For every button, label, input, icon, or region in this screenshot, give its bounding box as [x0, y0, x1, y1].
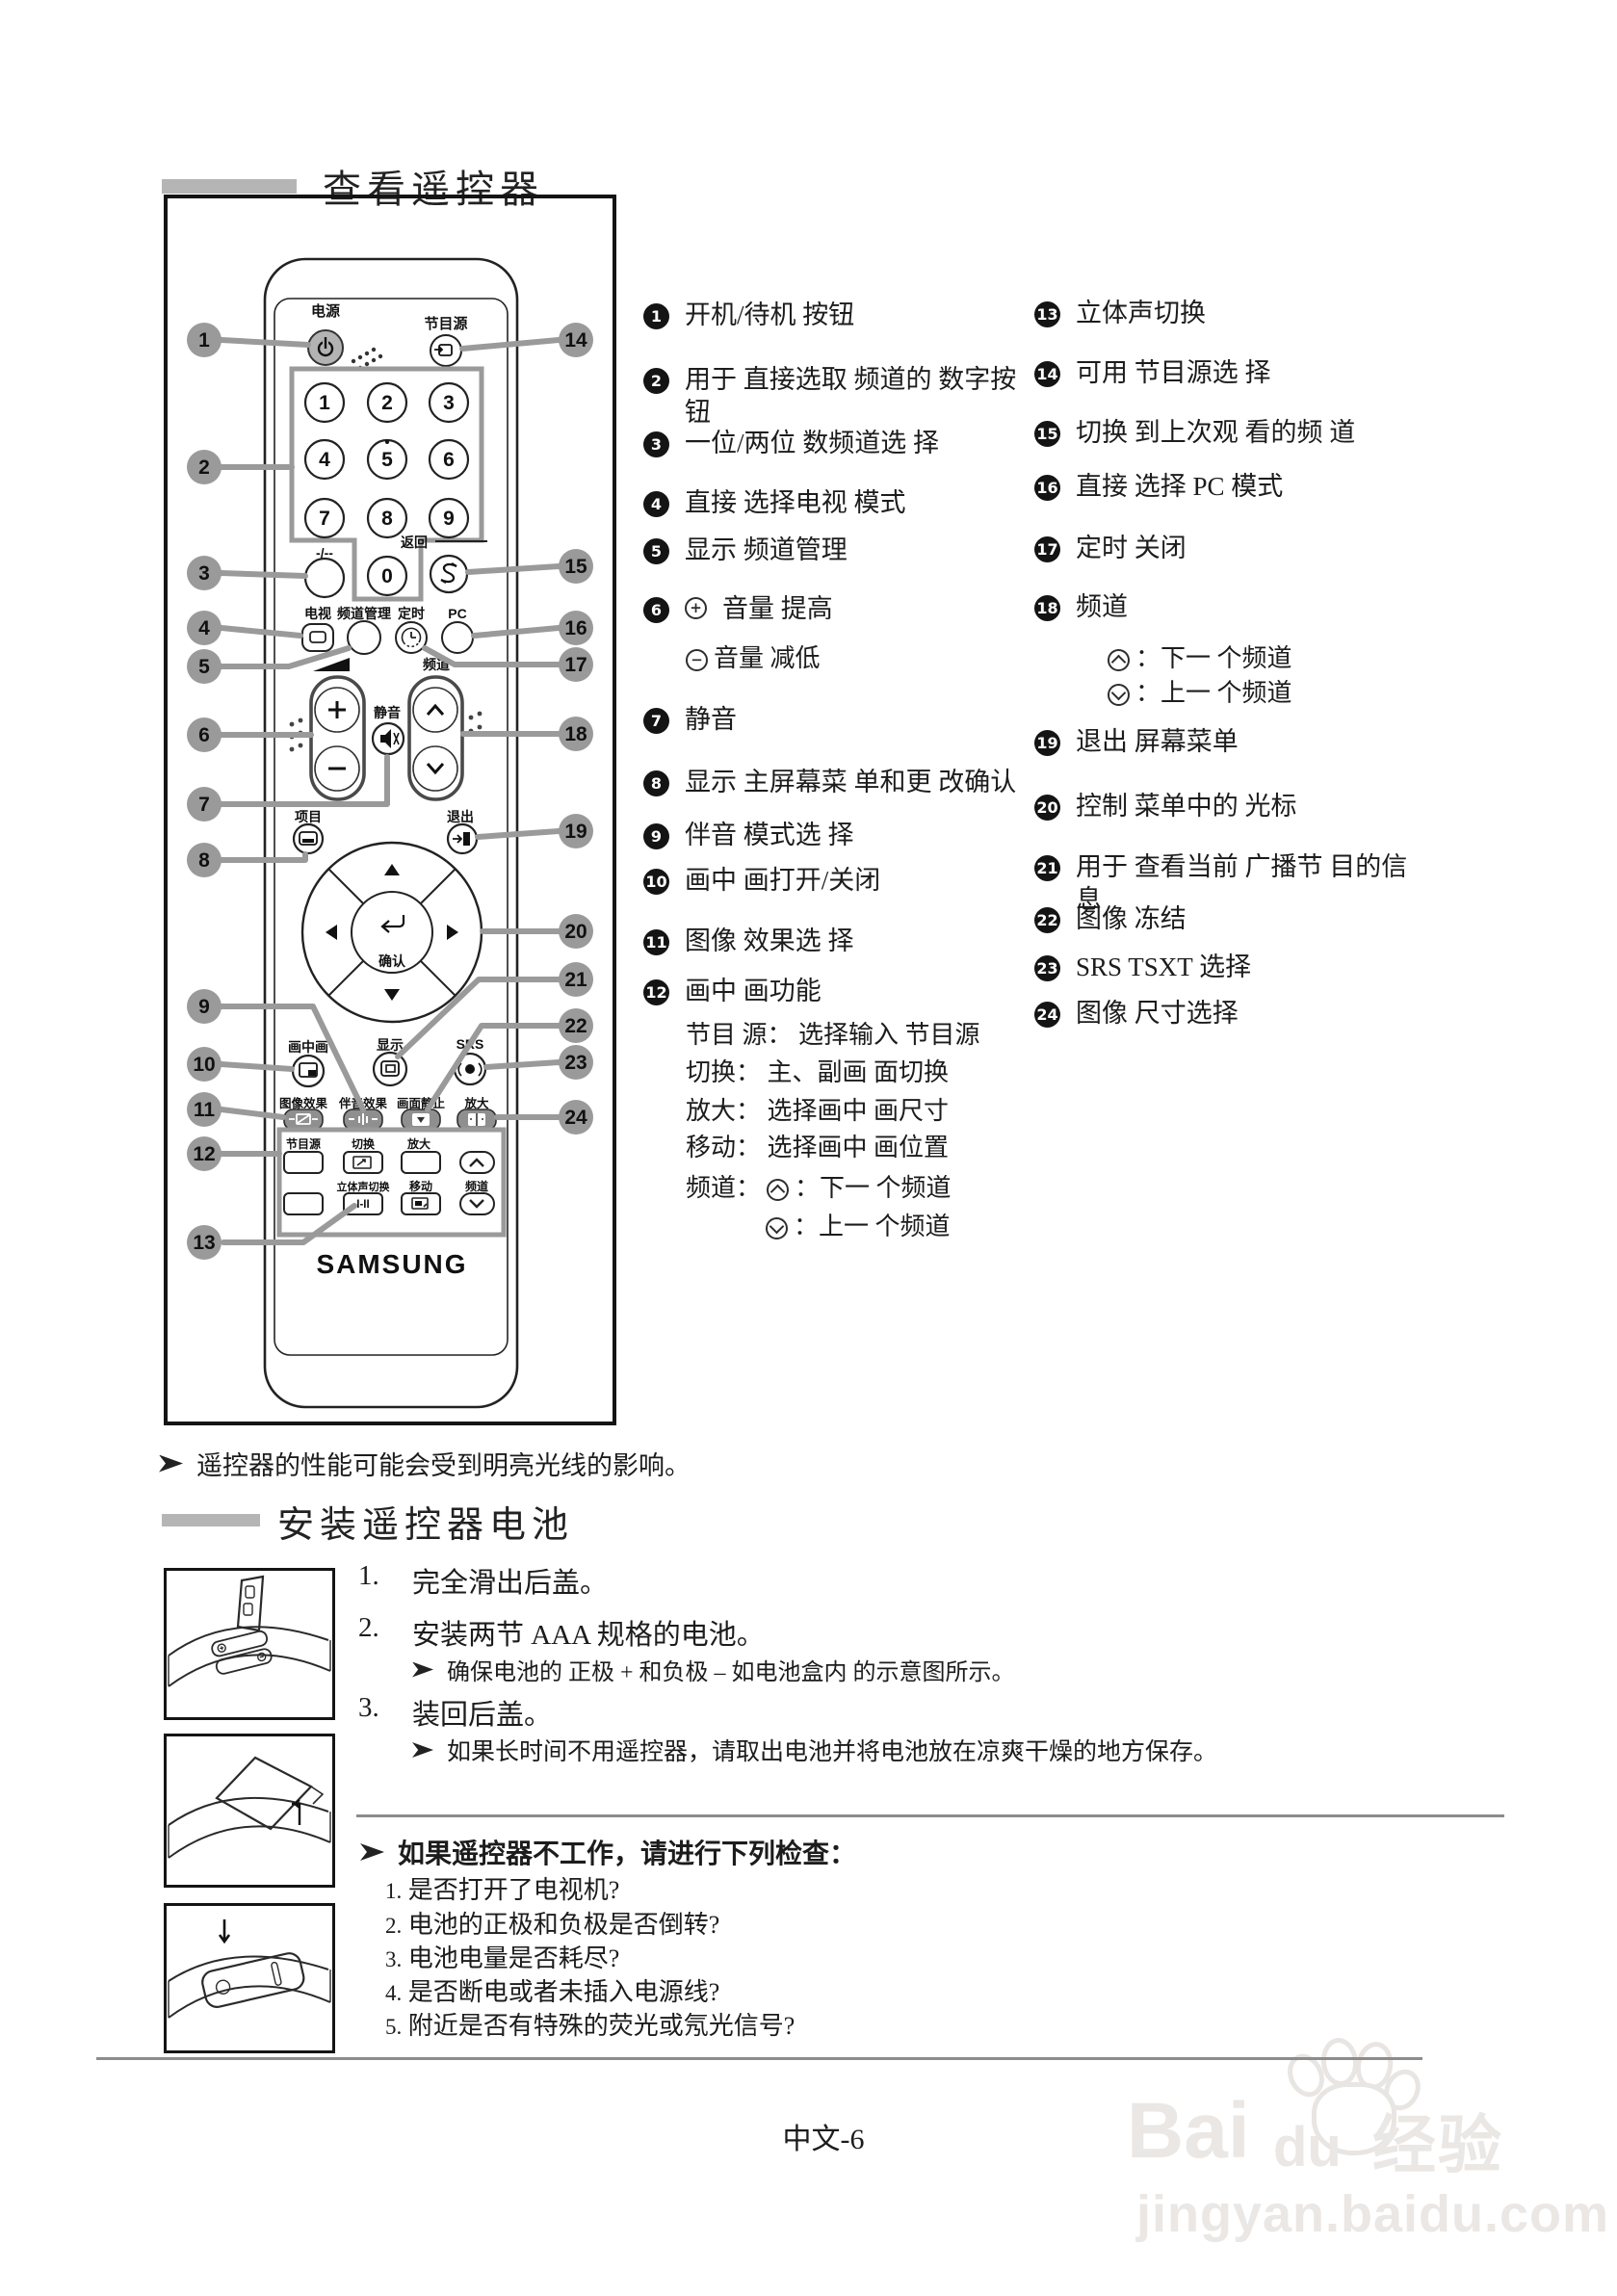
group-size-button[interactable] — [402, 1152, 440, 1173]
zoom-label: 放大 — [463, 1096, 489, 1110]
battery-sketch-slide — [167, 1906, 332, 2050]
legend-num: 20 — [1034, 795, 1060, 821]
callout-4: 4 — [187, 611, 222, 645]
digit-4-label: 4 — [319, 449, 330, 471]
note-arrow-icon — [412, 1742, 433, 1758]
legend-item-2: 2用于 直接选取 频道的 数字按 钮 — [643, 364, 1048, 430]
step-3-note-text: 如果长时间不用遥控器，请取出电池并将电池放在凉爽干燥的地方保存。 — [447, 1733, 1217, 1767]
note-arrow-icon — [159, 1455, 183, 1473]
digit-7-label: 7 — [319, 508, 330, 530]
svg-text:24: 24 — [564, 1107, 587, 1129]
group-channel2-label: 频道 — [465, 1179, 488, 1193]
legend-item-1: 1开机/待机 按钮 — [643, 300, 854, 332]
callout-1: 1 — [187, 323, 222, 357]
step-2-note-text: 确保电池的 正极 + 和负极 – 如电池盒内 的示意图所示。 — [447, 1653, 1015, 1686]
svg-text:11: 11 — [194, 1099, 216, 1121]
exit-label: 退出 — [447, 809, 474, 824]
legend-text: 直接 选择 PC 模式 — [1076, 471, 1283, 504]
svg-text:8: 8 — [198, 849, 210, 872]
samsung-logo: SAMSUNG — [316, 1249, 467, 1279]
return-icon — [441, 564, 456, 582]
callout-11: 11 — [187, 1092, 222, 1127]
callout-14: 14 — [559, 323, 593, 357]
pip-icon — [300, 1063, 317, 1077]
group-channel-up-icon — [470, 1160, 483, 1166]
group-move-button[interactable] — [402, 1193, 440, 1214]
callout-6: 6 — [187, 717, 222, 752]
svg-text:15: 15 — [564, 556, 587, 578]
group-move-label: 移动 — [409, 1179, 432, 1193]
legend-num: 17 — [1034, 536, 1060, 562]
dpad[interactable] — [302, 843, 482, 1022]
divider-line — [356, 1814, 1504, 1817]
pip-button[interactable] — [293, 1056, 324, 1086]
legend-item-5: 5显示 频道管理 — [643, 535, 848, 567]
check-item-1: 1. 是否打开了电视机? — [385, 1870, 619, 1906]
legend-item-18-down: ：上一 个频道 — [1108, 678, 1292, 708]
legend-num: 8 — [643, 770, 669, 796]
callout-18: 18 — [559, 717, 593, 751]
check-item-3: 3. 电池电量是否耗尽? — [385, 1939, 619, 1974]
legend-item-6b: −音量 减低 — [686, 643, 821, 673]
source-button[interactable] — [430, 335, 461, 366]
section1-bar — [162, 179, 297, 194]
battery-illustration-2 — [164, 1734, 335, 1888]
callout-12: 12 — [187, 1136, 222, 1171]
pc-label: PC — [448, 606, 466, 621]
legend-num: 7 — [643, 708, 669, 734]
callout-8: 8 — [187, 843, 222, 877]
pip-label: 画中画 — [288, 1039, 328, 1055]
sound-effect-button[interactable] — [344, 1109, 382, 1130]
menu-icon — [300, 832, 317, 845]
channel-manager-label: 频道管理 — [337, 606, 391, 621]
legend-item-12-move: 移动： 选择画中 画位置 — [686, 1133, 949, 1162]
legend-item-4: 4直接 选择电视 模式 — [643, 487, 906, 520]
channel-down-icon — [428, 764, 443, 772]
step-2-number: 2. — [358, 1612, 379, 1644]
watermark-du: du — [1273, 2115, 1342, 2179]
legend-num: 23 — [1034, 955, 1060, 981]
legend-text: 音量 提高 — [722, 593, 833, 626]
legend-item-18: 18频道 — [1034, 591, 1128, 624]
legend-item-20: 20控制 菜单中的 光标 — [1034, 791, 1297, 823]
legend-text: 显示 主屏幕菜 单和更 改确认 — [685, 767, 1016, 799]
svg-text:22: 22 — [564, 1015, 587, 1037]
channel-up-icon — [767, 1179, 789, 1201]
display-icon — [381, 1061, 399, 1076]
tv-label: 电视 — [304, 606, 331, 621]
legend-text: 图像 效果选 择 — [685, 926, 854, 958]
svg-text:18: 18 — [564, 723, 587, 745]
mute-label: 静音 — [374, 705, 401, 720]
legend-item-9: 9伴音 模式选 择 — [643, 820, 854, 852]
digit-buttons[interactable]: 1 2 3 4 5 6 7 8 9 0 — [305, 383, 468, 595]
legend-text: 显示 频道管理 — [685, 535, 848, 567]
svg-text:17: 17 — [564, 654, 587, 676]
step-1-text: 完全滑出后盖。 — [412, 1560, 608, 1601]
legend-num: 22 — [1034, 907, 1060, 933]
legend-item-23: 23SRS TSXT 选择 — [1034, 952, 1251, 984]
volume-minus-icon: − — [686, 649, 708, 671]
legend-text: 控制 菜单中的 光标 — [1076, 791, 1297, 823]
svg-text:23: 23 — [564, 1052, 587, 1074]
legend-num: 13 — [1034, 301, 1060, 327]
channel-up-icon — [1108, 649, 1130, 671]
watermark-url: jingyan.baidu.com — [1136, 2184, 1609, 2244]
channel-down-icon — [1108, 684, 1130, 706]
legend-num: 1 — [643, 303, 669, 329]
section2-title: 安装遥控器电池 — [277, 1495, 574, 1548]
legend-item-12-channel-down: ：上一 个频道 — [766, 1212, 951, 1241]
digit-6-label: 6 — [443, 449, 455, 471]
page-number: 中文-6 — [727, 2115, 920, 2157]
legend-text: 画中 画打开/关闭 — [685, 865, 880, 898]
svg-text:14: 14 — [564, 329, 587, 352]
group-size-label: 放大 — [406, 1136, 430, 1151]
svg-text:4: 4 — [198, 617, 210, 639]
callout-9: 9 — [187, 989, 222, 1024]
legend-num: 21 — [1034, 855, 1060, 881]
legend-item-12: 12画中 画功能 — [643, 976, 822, 1008]
digit-5-dot — [385, 440, 389, 444]
legend-item-14: 14可用 节目源选 择 — [1034, 357, 1271, 390]
stereo-ii-label: I-II — [356, 1199, 369, 1211]
legend-item-15: 15切换 到上次观 看的频 道 — [1034, 417, 1355, 450]
legend-text: 一位/两位 数频道选 择 — [685, 428, 939, 460]
legend-item-7: 7静音 — [643, 704, 737, 737]
callout-19: 19 — [559, 814, 593, 848]
legend-item-12-channel-up: 频道：：下一 个频道 — [686, 1173, 952, 1203]
legend-item-6: 6+音量 提高 — [643, 593, 833, 626]
callout-13: 13 — [187, 1225, 222, 1260]
mute-button[interactable] — [373, 723, 404, 754]
svg-text:21: 21 — [564, 969, 587, 991]
legend-num: 14 — [1034, 361, 1060, 387]
check-item-4: 4. 是否断电或者未插入电源线? — [385, 1972, 719, 2008]
legend-num: 6 — [643, 597, 669, 623]
legend-text: 伴音 模式选 择 — [685, 820, 854, 852]
dash-button[interactable] — [305, 559, 344, 597]
legend-text: 静音 — [685, 704, 737, 737]
pic-effect-label: 图像效果 — [279, 1096, 328, 1110]
section2-bar — [162, 1514, 260, 1526]
pic-effect-button[interactable] — [284, 1109, 323, 1130]
step-2-text: 安装两节 AAA 规格的电池。 — [412, 1612, 765, 1653]
light-note: 遥控器的性能可能会受到明亮光线的影响。 — [159, 1445, 691, 1482]
display-label: 显示 — [377, 1037, 404, 1053]
remote-diagram: 电源 节目源 — [164, 195, 616, 1425]
digit-9-label: 9 — [443, 508, 455, 530]
callout-22: 22 — [559, 1008, 593, 1043]
power-label: 电源 — [311, 302, 340, 320]
source-icon — [434, 345, 452, 355]
callout-3: 3 — [187, 556, 222, 590]
battery-illustration-3 — [164, 1903, 335, 2053]
group-source-label: 节目源 — [286, 1136, 321, 1151]
channel-manager-button[interactable] — [348, 621, 380, 654]
enter-icon — [382, 915, 404, 932]
group-channel-up-button[interactable] — [460, 1152, 494, 1173]
check-title-row: 如果遥控器不工作，请进行下列检查： — [360, 1833, 856, 1871]
svg-text:12: 12 — [193, 1143, 215, 1165]
legend-item-24: 24图像 尺寸选择 — [1034, 998, 1239, 1031]
move-icon — [412, 1198, 428, 1209]
tv-icon — [310, 632, 326, 642]
digit-0-label: 0 — [381, 565, 393, 587]
callout-23: 23 — [559, 1045, 593, 1080]
timer-label: 定时 — [398, 606, 425, 621]
legend-text: 画中 画功能 — [685, 976, 822, 1008]
group-source-button[interactable] — [284, 1152, 323, 1173]
note-arrow-icon — [360, 1843, 384, 1861]
group-swap-button[interactable] — [344, 1152, 382, 1173]
group-swap-label: 切换 — [352, 1136, 376, 1151]
effect-buttons — [284, 1109, 496, 1130]
dpad-up-icon — [384, 864, 400, 875]
step-3-note: 如果长时间不用遥控器，请取出电池并将电池放在凉爽干燥的地方保存。 — [412, 1733, 1217, 1767]
callout-17: 17 — [559, 647, 593, 682]
legend-num: 9 — [643, 823, 669, 849]
legend-num: 18 — [1034, 595, 1060, 621]
legend-num: 5 — [643, 538, 669, 564]
legend-text: 音量 减低 — [714, 643, 821, 673]
battery-sketch-cover — [167, 1736, 332, 1885]
legend-item-22: 22图像 冻结 — [1034, 903, 1187, 936]
display-button[interactable] — [374, 1053, 406, 1085]
callout-20: 20 — [559, 914, 593, 949]
return-button[interactable] — [430, 556, 467, 592]
watermark-bai: Bai — [1127, 2086, 1250, 2177]
digit-3-label: 3 — [443, 392, 455, 414]
legend-num: 11 — [643, 929, 669, 955]
legend-num: 12 — [643, 979, 669, 1005]
volume-plus-icon: + — [685, 597, 707, 619]
legend-text: 频道 — [1076, 591, 1128, 624]
channel-rocker[interactable] — [409, 677, 462, 799]
callout-2: 2 — [187, 450, 222, 484]
legend-item-16: 16直接 选择 PC 模式 — [1034, 471, 1283, 504]
note-arrow-icon — [412, 1662, 433, 1678]
source-label: 节目源 — [424, 315, 467, 332]
legend-item-11: 11图像 效果选 择 — [643, 926, 854, 958]
legend-text: SRS TSXT 选择 — [1076, 952, 1251, 984]
legend-text: 定时 关闭 — [1076, 533, 1187, 565]
group-blank-button[interactable] — [284, 1193, 323, 1214]
svg-text:10: 10 — [193, 1054, 215, 1076]
check-item-5: 5. 附近是否有特殊的荧光或氖光信号? — [385, 2006, 795, 2042]
step-1-number: 1. — [358, 1560, 379, 1592]
volume-rocker[interactable] — [311, 677, 364, 799]
clock-icon — [403, 628, 421, 646]
legend-text: 退出 屏幕菜单 — [1076, 726, 1239, 759]
svg-text:1: 1 — [198, 329, 210, 352]
tv-button[interactable] — [302, 624, 333, 651]
dpad-right-icon — [447, 925, 458, 940]
footer-line — [96, 2057, 1422, 2060]
srs-icon — [458, 1063, 482, 1076]
svg-text:3: 3 — [198, 562, 210, 585]
exit-button[interactable] — [448, 824, 477, 853]
legend-text: 图像 尺寸选择 — [1076, 998, 1239, 1031]
legend-item-12-source: 节目 源： 选择输入 节目源 — [686, 1020, 980, 1050]
dpad-down-icon — [384, 989, 400, 1001]
svg-text:6: 6 — [198, 724, 210, 746]
check-item-2: 2. 电池的正极和负极是否倒转? — [385, 1905, 719, 1941]
item-button[interactable] — [294, 824, 323, 853]
legend-item-13: 13立体声切换 — [1034, 298, 1206, 330]
legend-item-18-up: ：下一 个频道 — [1108, 643, 1292, 673]
volume-up-icon — [328, 701, 346, 718]
legend-num: 16 — [1034, 475, 1060, 501]
svg-text:7: 7 — [198, 794, 210, 816]
step-2-note: 确保电池的 正极 + 和负极 – 如电池盒内 的示意图所示。 — [412, 1653, 1015, 1686]
legend-text: 开机/待机 按钮 — [685, 300, 854, 332]
svg-text:13: 13 — [193, 1232, 215, 1254]
legend-item-3: 3一位/两位 数频道选 择 — [643, 428, 939, 460]
pc-button[interactable] — [442, 622, 473, 653]
legend-text: 用于 直接选取 频道的 数字按 钮 — [685, 364, 1048, 430]
legend-text: 直接 选择电视 模式 — [685, 487, 906, 520]
light-note-text: 遥控器的性能可能会受到明亮光线的影响。 — [196, 1445, 691, 1482]
callout-21: 21 — [559, 962, 593, 997]
legend-text: 可用 节目源选 择 — [1076, 357, 1271, 390]
manual-page: 查看遥控器 电源 节目源 — [0, 0, 1617, 2296]
battery-illustration-1 — [164, 1568, 335, 1720]
digit-8-label: 8 — [381, 508, 393, 530]
legend-text: 图像 冻结 — [1076, 903, 1187, 936]
legend-num: 3 — [643, 431, 669, 457]
channel-down-icon — [766, 1217, 788, 1239]
baidu-watermark: Bai du 经验 jingyan.baidu.com — [1127, 2048, 1560, 2279]
zoom-button[interactable] — [457, 1109, 496, 1130]
legend-item-8: 8显示 主屏幕菜 单和更 改确认 — [643, 767, 1016, 799]
svg-text:16: 16 — [564, 617, 587, 639]
mute-icon — [380, 729, 399, 748]
item-label: 项目 — [295, 809, 322, 824]
callout-16: 16 — [559, 611, 593, 645]
legend-num: 4 — [643, 491, 669, 517]
legend-item-19: 19退出 屏幕菜单 — [1034, 726, 1239, 759]
legend-item-12-swap: 切换： 主、副画 面切换 — [686, 1057, 949, 1087]
group-stereo-label: 立体声切换 — [337, 1180, 391, 1193]
group-channel-down-button[interactable] — [460, 1193, 494, 1214]
exit-icon — [453, 832, 470, 846]
swap-icon — [353, 1157, 371, 1168]
callout-24: 24 — [559, 1100, 593, 1135]
legend-num: 2 — [643, 368, 669, 394]
digit-2-label: 2 — [381, 392, 393, 414]
legend-item-17: 17定时 关闭 — [1034, 533, 1187, 565]
legend-text: 切换 到上次观 看的频 道 — [1076, 417, 1355, 450]
watermark-jingyan: 经验 — [1372, 2094, 1503, 2186]
digit-1-label: 1 — [319, 392, 330, 414]
svg-text:19: 19 — [564, 821, 587, 843]
step-3-text: 装回后盖。 — [412, 1692, 552, 1733]
callout-15: 15 — [559, 549, 593, 584]
svg-text:20: 20 — [564, 921, 587, 943]
group-channel-down-icon — [470, 1200, 483, 1207]
channel-up-icon — [428, 706, 443, 715]
still-button[interactable] — [402, 1109, 440, 1130]
callout-10: 10 — [187, 1047, 222, 1082]
power-button[interactable] — [308, 330, 343, 365]
callout-5: 5 — [187, 649, 222, 684]
legend-num: 15 — [1034, 421, 1060, 447]
svg-text:2: 2 — [198, 457, 210, 479]
digit-5-label: 5 — [381, 449, 393, 471]
svg-text:9: 9 — [198, 996, 210, 1018]
return-label: 返回 — [401, 535, 428, 550]
legend-item-10: 10画中 画打开/关闭 — [643, 865, 880, 898]
legend-num: 24 — [1034, 1002, 1060, 1028]
dpad-left-icon — [326, 925, 337, 940]
callout-7: 7 — [187, 787, 222, 822]
step-3-number: 3. — [358, 1692, 379, 1724]
check-title-text: 如果遥控器不工作，请进行下列检查： — [398, 1833, 856, 1871]
confirm-label: 确认 — [378, 953, 406, 969]
legend-num: 10 — [643, 869, 669, 895]
battery-sketch-open — [167, 1571, 332, 1717]
legend-text: 立体声切换 — [1076, 298, 1206, 330]
legend-num: 19 — [1034, 730, 1060, 756]
svg-text:5: 5 — [198, 656, 210, 678]
legend-item-12-size: 放大： 选择画中 画尺寸 — [686, 1096, 949, 1126]
